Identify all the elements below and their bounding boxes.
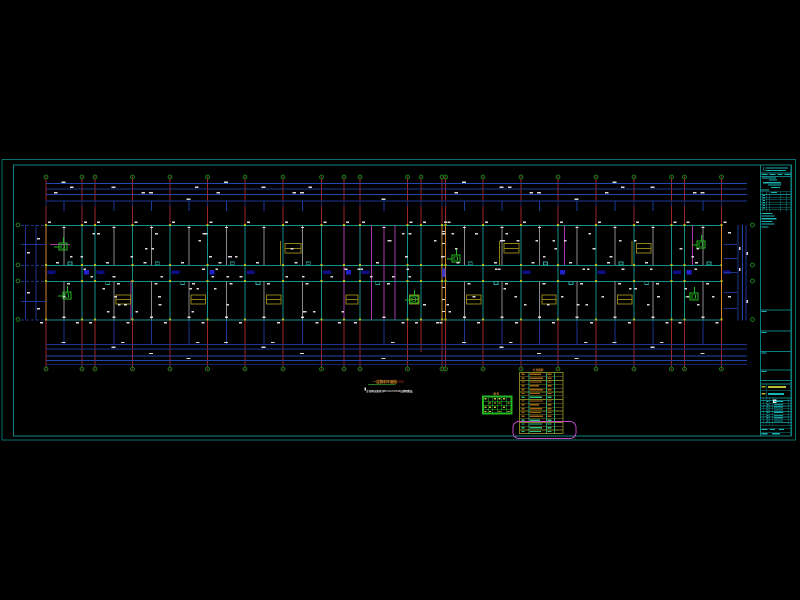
svg-text:图 例: 图 例 — [494, 391, 500, 395]
svg-text:灯具图例: 灯具图例 — [533, 368, 544, 372]
svg-text:1:100: 1:100 — [397, 380, 405, 384]
svg-text:注:照明支路均为BV-2×2.5-PC16沿墙暗敷设。: 注:照明支路均为BV-2×2.5-PC16沿墙暗敷设。 — [366, 389, 415, 393]
svg-text:一层照明平面图: 一层照明平面图 — [373, 379, 397, 384]
